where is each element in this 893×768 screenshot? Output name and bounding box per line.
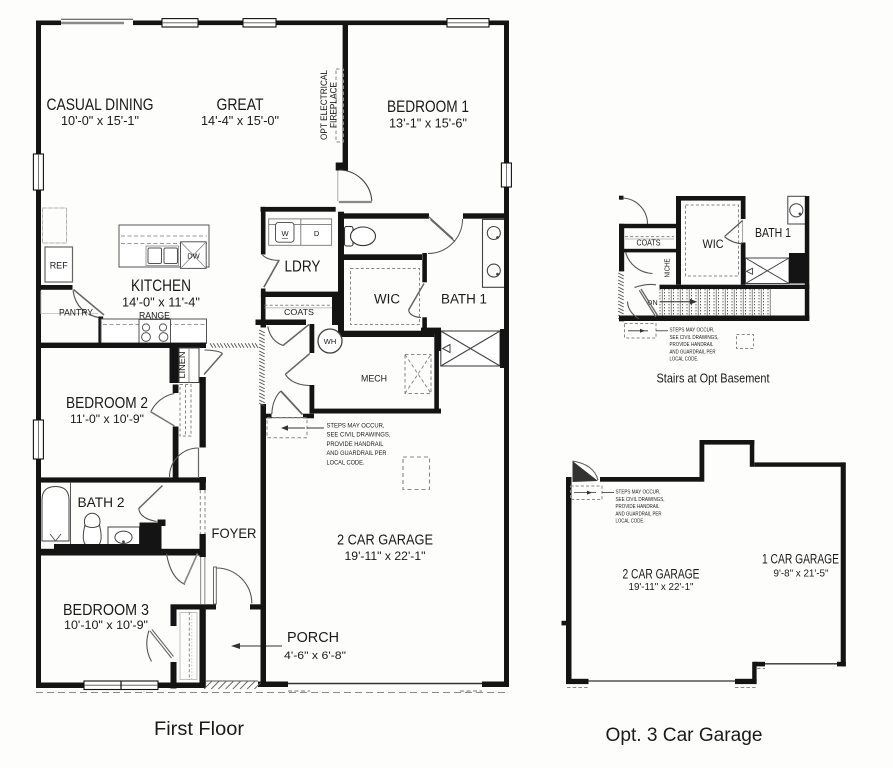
svg-text:LDRY: LDRY (285, 259, 321, 276)
svg-text:PORCH: PORCH (287, 630, 339, 646)
svg-text:PROVIDE HANDRAIL: PROVIDE HANDRAIL (670, 342, 715, 348)
svg-text:COATS: COATS (637, 238, 661, 248)
svg-text:WIC: WIC (703, 237, 724, 251)
svg-text:D: D (314, 229, 320, 238)
svg-text:BEDROOM 3: BEDROOM 3 (63, 602, 149, 619)
svg-text:GREAT: GREAT (217, 96, 264, 114)
svg-text:AND GUARDRAIL PER: AND GUARDRAIL PER (616, 511, 662, 517)
svg-text:WH: WH (324, 337, 337, 346)
svg-text:W: W (281, 229, 289, 238)
svg-text:10'-0" x 15'-1": 10'-0" x 15'-1" (61, 113, 139, 128)
svg-text:NICHE: NICHE (665, 258, 672, 277)
svg-text:PROVIDE HANDRAIL: PROVIDE HANDRAIL (616, 504, 661, 510)
svg-text:4'-6" x 6'-8": 4'-6" x 6'-8" (284, 650, 346, 662)
svg-text:14'-0" x 11'-4": 14'-0" x 11'-4" (122, 295, 200, 310)
svg-text:9'-8" x 21'-5": 9'-8" x 21'-5" (774, 568, 829, 580)
svg-text:COATS: COATS (284, 307, 314, 317)
svg-text:Opt. 3 Car Garage: Opt. 3 Car Garage (606, 725, 763, 746)
svg-text:LOCAL CODE.: LOCAL CODE. (670, 357, 699, 363)
svg-text:Stairs at Opt Basement: Stairs at Opt Basement (657, 372, 770, 386)
svg-text:1 CAR GARAGE: 1 CAR GARAGE (762, 552, 839, 567)
svg-text:OPT ELECTRICAL: OPT ELECTRICAL (319, 70, 329, 140)
svg-text:10'-10" x 10'-9": 10'-10" x 10'-9" (64, 618, 148, 632)
svg-text:BATH 2: BATH 2 (78, 494, 125, 510)
svg-text:SEE CIVIL DRAWINGS,: SEE CIVIL DRAWINGS, (616, 497, 665, 503)
svg-text:SEE CIVIL DRAWINGS,: SEE CIVIL DRAWINGS, (327, 432, 391, 439)
svg-text:BEDROOM 1: BEDROOM 1 (387, 98, 469, 116)
svg-text:STEPS MAY OCCUR,: STEPS MAY OCCUR, (670, 328, 715, 334)
svg-text:WIC: WIC (374, 292, 400, 307)
svg-text:13'-1" x 15'-6": 13'-1" x 15'-6" (389, 116, 467, 131)
svg-text:MECH: MECH (361, 374, 387, 384)
svg-text:BATH 1: BATH 1 (755, 226, 791, 240)
svg-text:LOCAL CODE.: LOCAL CODE. (616, 519, 645, 525)
svg-text:CASUAL DINING: CASUAL DINING (47, 96, 154, 114)
svg-text:AND GUARDRAIL PER: AND GUARDRAIL PER (670, 349, 716, 355)
svg-text:SEE CIVIL DRAWINGS,: SEE CIVIL DRAWINGS, (670, 335, 719, 341)
svg-text:BATH 1: BATH 1 (441, 292, 487, 307)
svg-text:First Floor: First Floor (154, 719, 245, 740)
svg-text:FOYER: FOYER (212, 525, 257, 541)
svg-text:19'-11" x 22'-1": 19'-11" x 22'-1" (345, 549, 426, 563)
svg-text:STEPS MAY OCCUR,: STEPS MAY OCCUR, (327, 423, 385, 430)
svg-text:REF: REF (50, 261, 69, 271)
svg-text:AND GUARDRAIL PER: AND GUARDRAIL PER (327, 450, 387, 457)
svg-text:11'-0" x 10'-9": 11'-0" x 10'-9" (70, 412, 144, 426)
svg-text:STEPS MAY OCCUR,: STEPS MAY OCCUR, (616, 490, 661, 496)
svg-text:FIREPLACE: FIREPLACE (329, 82, 339, 128)
svg-text:LINEN: LINEN (178, 351, 187, 378)
svg-text:LOCAL CODE.: LOCAL CODE. (327, 459, 365, 466)
svg-text:RANGE: RANGE (139, 311, 170, 321)
svg-text:KITCHEN: KITCHEN (131, 277, 191, 295)
svg-text:PANTRY: PANTRY (59, 308, 93, 318)
svg-text:2 CAR GARAGE: 2 CAR GARAGE (337, 532, 433, 549)
svg-text:DW: DW (187, 252, 200, 261)
svg-text:19'-11" x 22'-1": 19'-11" x 22'-1" (629, 581, 694, 593)
svg-text:PROVIDE HANDRAIL: PROVIDE HANDRAIL (327, 441, 384, 448)
svg-text:2 CAR GARAGE: 2 CAR GARAGE (623, 567, 700, 582)
svg-text:BEDROOM 2: BEDROOM 2 (66, 395, 148, 412)
svg-text:14'-4" x 15'-0": 14'-4" x 15'-0" (201, 113, 279, 128)
